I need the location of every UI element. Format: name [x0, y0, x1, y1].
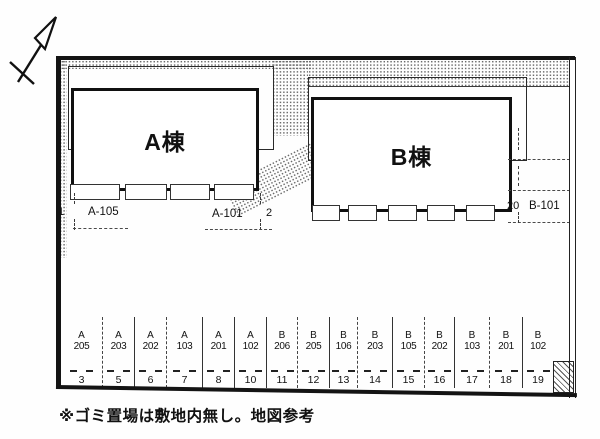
stall-1-tick-top: [74, 193, 75, 204]
gravel-strip-center: [272, 60, 308, 136]
building-b-label: B棟: [391, 138, 433, 172]
stall-unit: 102: [243, 341, 259, 352]
stall-building: A: [78, 330, 85, 341]
building-b: B棟: [311, 97, 512, 212]
stall-2-unit: A-101: [212, 208, 243, 220]
stall-unit: 201: [211, 341, 227, 352]
stall-unit: 206: [274, 341, 290, 352]
boundary-right: [569, 57, 576, 398]
stall-unit: 106: [336, 341, 352, 352]
stall-2-number: 2: [266, 207, 272, 219]
stall-marks: [139, 370, 162, 372]
stall-marks: [332, 370, 355, 372]
stall-marks: [207, 370, 230, 372]
stall-building: A: [247, 330, 254, 341]
parking-stall: A2035: [102, 317, 134, 388]
stall-20-line-top: [508, 159, 570, 160]
stall-marks: [107, 370, 130, 372]
stall-building: B: [535, 330, 542, 341]
porch-b4: [427, 205, 455, 221]
porch-b1: [312, 205, 340, 221]
stall-20-tick-mid: [518, 166, 519, 186]
stall-unit: 202: [143, 341, 159, 352]
porch-b5: [466, 205, 495, 221]
stall-marks: [173, 370, 196, 372]
stall-building: A: [181, 330, 188, 341]
parking-stall: A10210: [234, 317, 266, 388]
stall-unit: 203: [367, 341, 383, 352]
building-a-label: A棟: [144, 123, 186, 157]
stall-number: 11: [277, 374, 288, 388]
stall-unit: 105: [401, 341, 417, 352]
porch-b2: [348, 205, 377, 221]
stall-building: B: [405, 330, 412, 341]
stall-marks: [70, 370, 93, 372]
stall-20-tick-lower: [518, 212, 519, 223]
stall-1-unit: A-105: [88, 206, 119, 218]
stall-20-number: 20: [507, 200, 519, 212]
stall-marks: [495, 370, 518, 372]
stall-unit: 205: [306, 341, 322, 352]
site-note: ※ゴミ置場は敷地内無し。地図参考: [59, 404, 315, 426]
stall-building: B: [469, 330, 476, 341]
parking-stall: B20118: [489, 317, 522, 388]
boundary-top: [56, 56, 575, 60]
parking-stall: B10515: [392, 317, 424, 388]
parking-stall: A1037: [166, 317, 202, 388]
site-plan: A棟 B棟 1 A-105 A-101 2 20 B-101 A2053 A20…: [0, 0, 600, 439]
stall-20-tick-upper: [518, 128, 519, 150]
parking-stall: B20611: [266, 317, 297, 388]
parking-stall: A2053: [61, 317, 102, 388]
stall-building: A: [115, 330, 122, 341]
stall-marks: [527, 370, 550, 372]
stall-unit: 103: [177, 341, 193, 352]
parking-stall: B10613: [329, 317, 357, 388]
stall-building: A: [147, 330, 154, 341]
stall-number: 15: [403, 374, 415, 388]
stall-unit: 102: [530, 341, 546, 352]
stall-unit: 203: [111, 341, 127, 352]
stall-building: B: [436, 330, 443, 341]
stall-marks: [397, 370, 420, 372]
parking-stall: A2018: [202, 317, 234, 388]
stall-1-line: [73, 228, 128, 229]
stall-number: 12: [308, 374, 320, 388]
stall-number: 16: [434, 374, 446, 388]
parking-stall: B10219: [522, 317, 553, 388]
parking-stall: B20512: [297, 317, 329, 388]
stall-building: B: [279, 330, 286, 341]
stall-20-line-mid: [508, 190, 570, 191]
stall-2-tick-top: [260, 193, 261, 204]
porch-a4: [214, 184, 254, 200]
parking-stall: B10317: [454, 317, 489, 388]
stall-number: 13: [338, 374, 350, 388]
stall-marks: [302, 370, 325, 372]
stall-number: 14: [369, 374, 381, 388]
porch-a2: [125, 184, 167, 200]
stall-2-line: [205, 229, 272, 230]
stall-number: 19: [532, 374, 544, 388]
stall-number: 17: [466, 374, 478, 388]
stall-marks: [271, 370, 294, 372]
porch-a3: [170, 184, 210, 200]
stall-number: 8: [216, 374, 222, 388]
porch-a1: [70, 184, 120, 200]
boundary-left: [56, 57, 61, 388]
stall-unit: 103: [464, 341, 480, 352]
stall-building: B: [310, 330, 317, 341]
stall-number: 10: [245, 374, 257, 388]
stall-number: 18: [500, 374, 512, 388]
stall-20-unit: B-101: [529, 200, 560, 212]
stall-building: B: [340, 330, 347, 341]
parking-stall: B20216: [424, 317, 454, 388]
stall-unit: 201: [498, 341, 514, 352]
parking-row: A2053 A2035 A2026 A1037 A2018 A10210 B20…: [61, 317, 553, 388]
stall-marks: [461, 370, 484, 372]
building-a: A棟: [71, 88, 259, 191]
stall-building: B: [503, 330, 510, 341]
stall-marks: [364, 370, 387, 372]
porch-b3: [388, 205, 417, 221]
parking-stall: B20314: [357, 317, 392, 388]
stall-unit: 202: [432, 341, 448, 352]
stall-number: 7: [182, 374, 188, 388]
stall-marks: [428, 370, 451, 372]
stall-unit: 205: [74, 341, 90, 352]
stall-building: B: [372, 330, 379, 341]
stall-building: A: [215, 330, 222, 341]
stall-marks: [239, 370, 262, 372]
parking-stall: A2026: [134, 317, 166, 388]
